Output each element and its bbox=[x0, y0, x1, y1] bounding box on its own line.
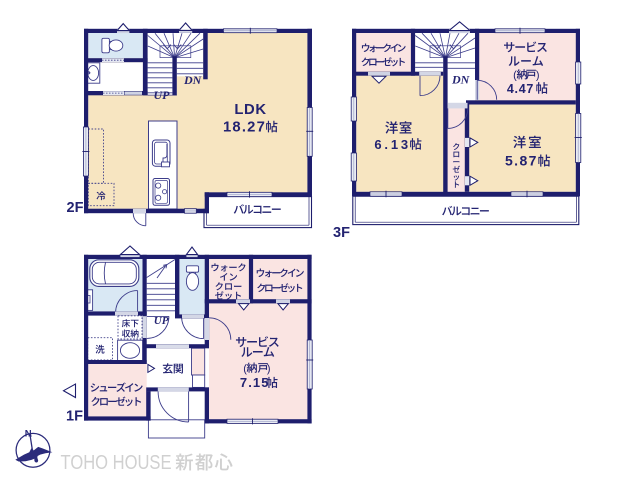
svg-text:3F: 3F bbox=[333, 225, 350, 241]
svg-text:TOHO HOUSE: TOHO HOUSE bbox=[61, 451, 172, 474]
svg-text:7.15: 7.15 bbox=[240, 375, 270, 390]
svg-text:DN: DN bbox=[183, 73, 203, 87]
svg-text:18.27: 18.27 bbox=[223, 119, 266, 135]
svg-text:(: ( bbox=[243, 363, 247, 375]
svg-text:4.47: 4.47 bbox=[507, 82, 534, 96]
svg-text:(: ( bbox=[513, 69, 517, 81]
svg-text:UP: UP bbox=[154, 88, 171, 102]
svg-text:1F: 1F bbox=[66, 408, 83, 424]
svg-text:6.13: 6.13 bbox=[374, 137, 411, 152]
svg-text:): ) bbox=[267, 363, 271, 375]
svg-text:LDK: LDK bbox=[234, 102, 266, 118]
svg-text:DN: DN bbox=[451, 72, 471, 86]
svg-text:5.87: 5.87 bbox=[505, 153, 538, 169]
svg-text:2F: 2F bbox=[67, 200, 84, 216]
svg-text:): ) bbox=[536, 69, 540, 81]
